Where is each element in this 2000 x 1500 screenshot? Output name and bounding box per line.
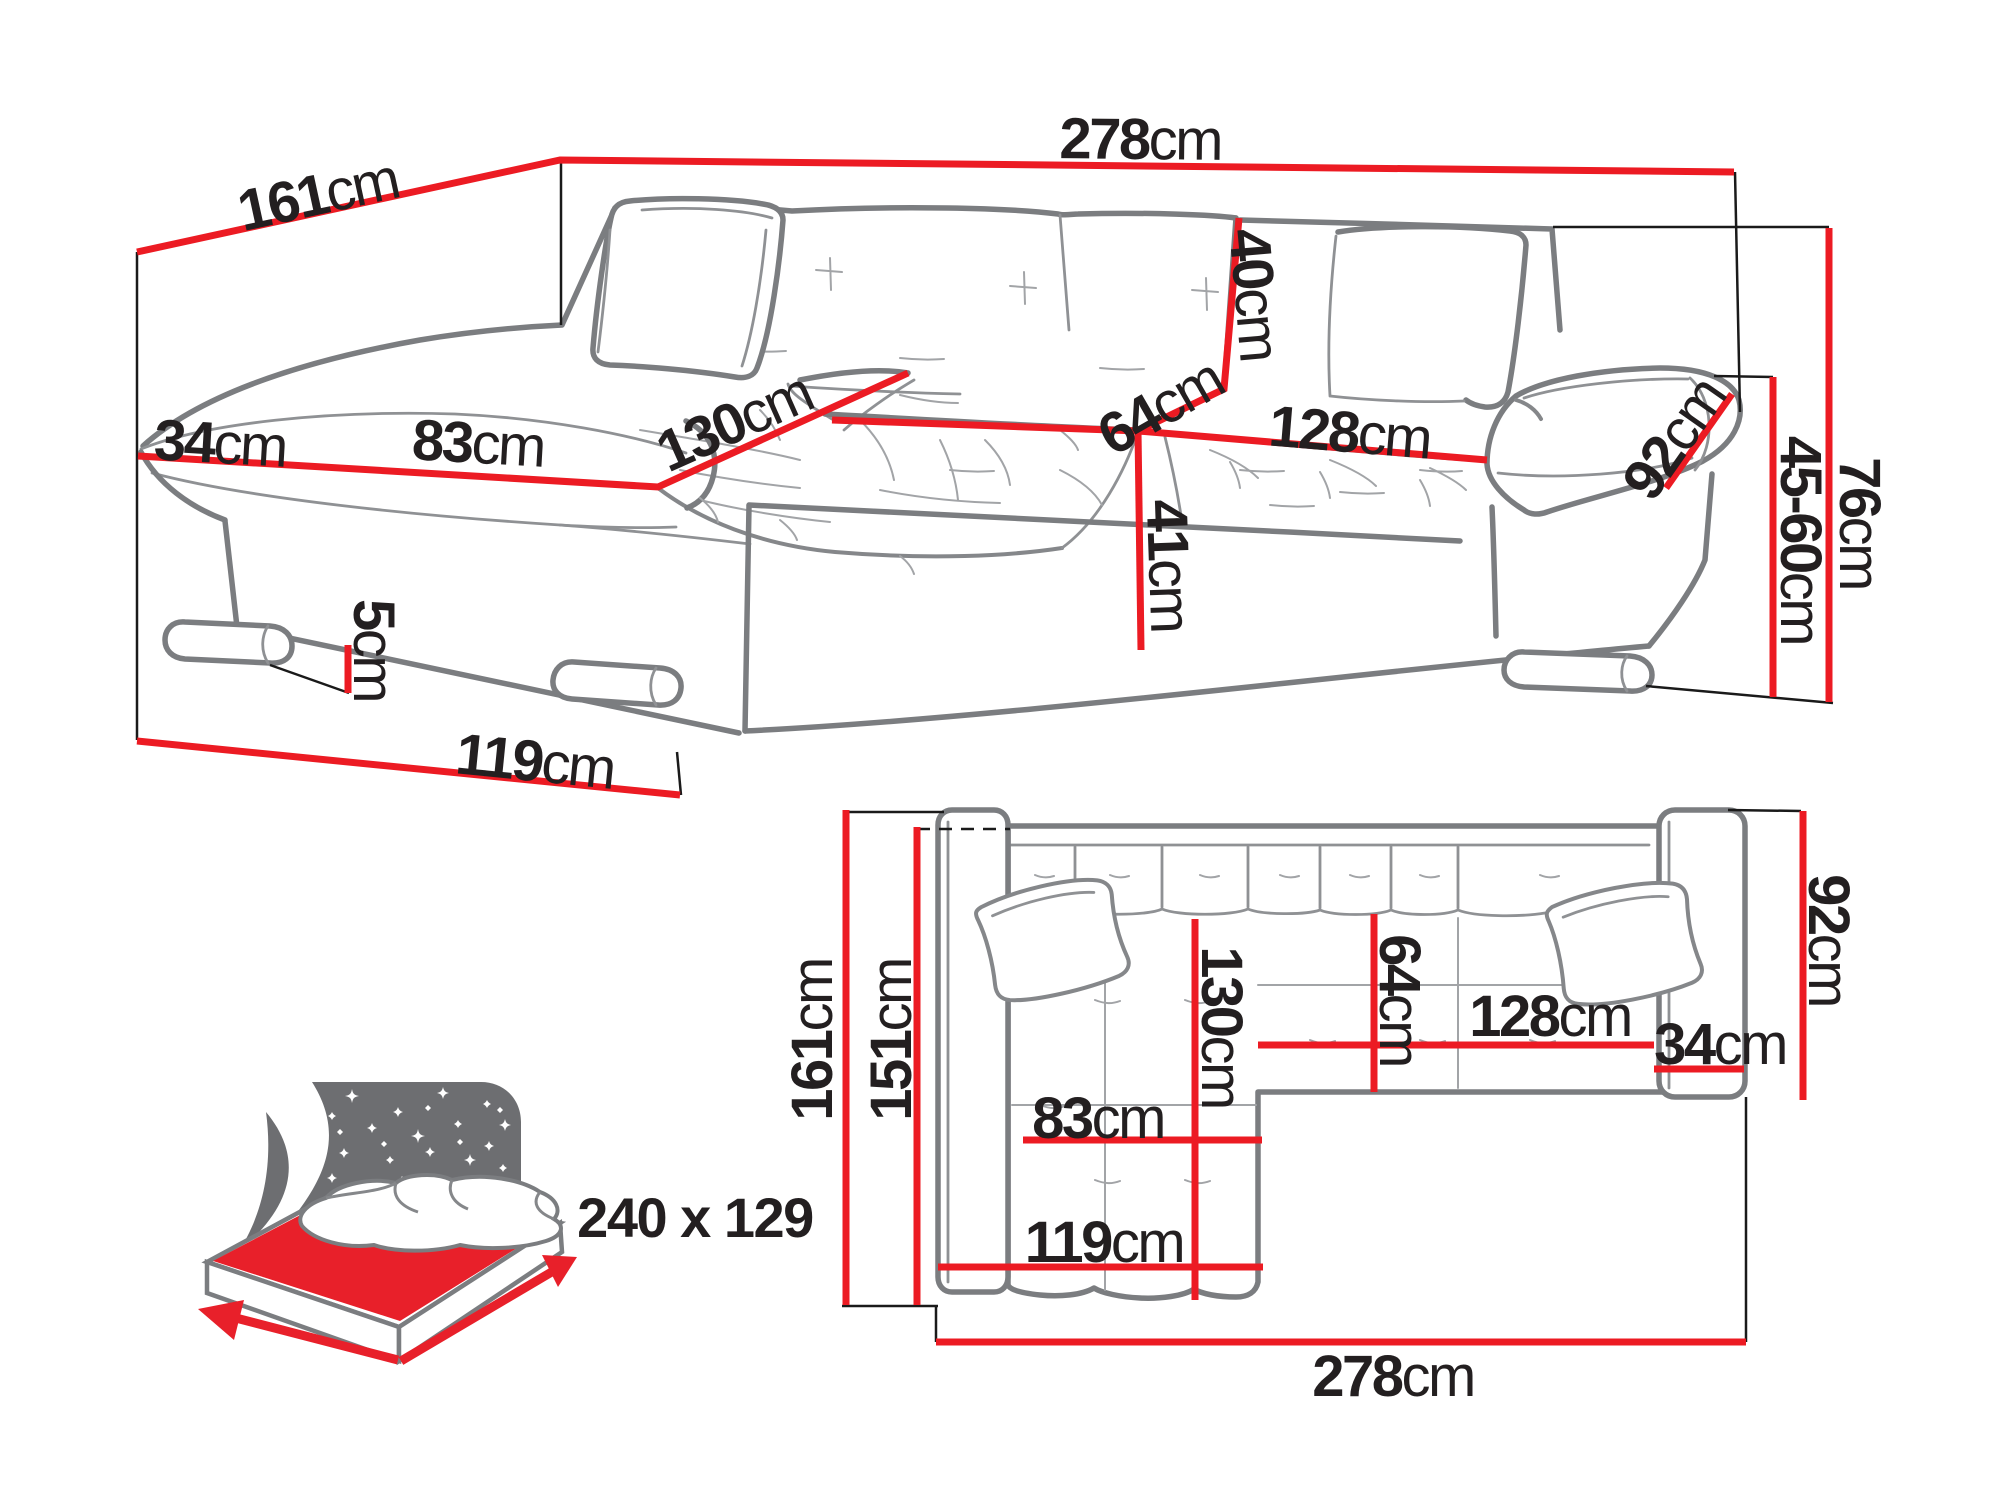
svg-text:278cm: 278cm bbox=[1312, 1344, 1474, 1409]
svg-text:128cm: 128cm bbox=[1469, 984, 1631, 1049]
svg-text:76cm: 76cm bbox=[1827, 457, 1892, 589]
svg-text:40cm: 40cm bbox=[1216, 226, 1292, 363]
svg-text:119cm: 119cm bbox=[1025, 1210, 1183, 1275]
svg-text:130cm: 130cm bbox=[1189, 946, 1254, 1108]
svg-text:92cm: 92cm bbox=[1796, 874, 1861, 1006]
svg-text:41cm: 41cm bbox=[1134, 498, 1204, 632]
svg-text:83cm: 83cm bbox=[410, 407, 545, 479]
svg-text:34cm: 34cm bbox=[1654, 1012, 1786, 1077]
svg-text:64cm: 64cm bbox=[1367, 934, 1432, 1066]
svg-text:240 x 129: 240 x 129 bbox=[577, 1186, 813, 1249]
svg-text:151cm: 151cm bbox=[859, 959, 924, 1121]
svg-text:161cm: 161cm bbox=[780, 959, 845, 1121]
svg-text:34cm: 34cm bbox=[152, 407, 287, 479]
svg-text:83cm: 83cm bbox=[1032, 1086, 1164, 1151]
svg-text:278cm: 278cm bbox=[1059, 106, 1221, 173]
svg-text:45-60cm: 45-60cm bbox=[1768, 436, 1833, 644]
svg-text:5cm: 5cm bbox=[341, 599, 406, 701]
svg-text:128cm: 128cm bbox=[1266, 394, 1432, 472]
